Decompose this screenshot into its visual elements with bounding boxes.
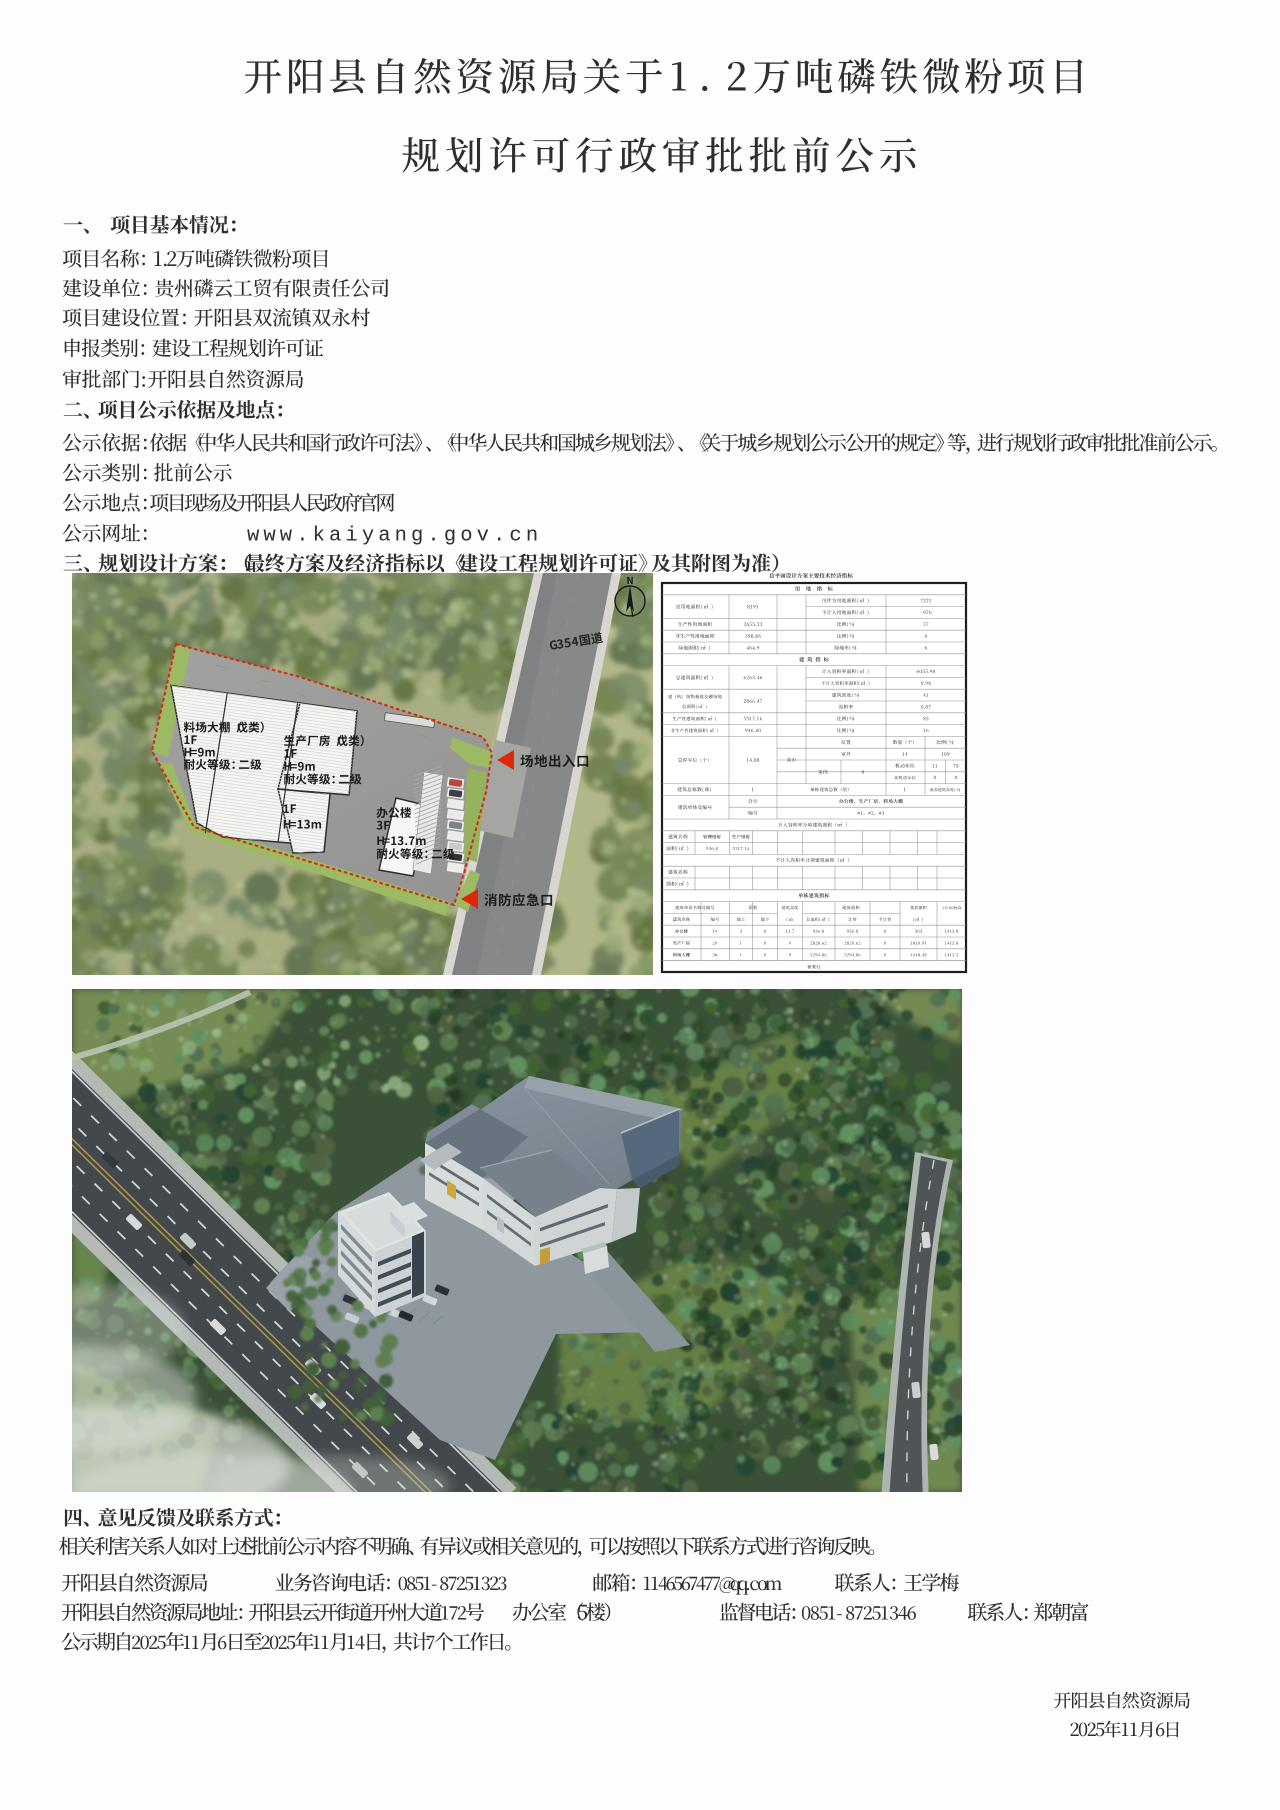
svg-text:www.kaiyang.gov.cn: www.kaiyang.gov.cn [247,525,542,548]
